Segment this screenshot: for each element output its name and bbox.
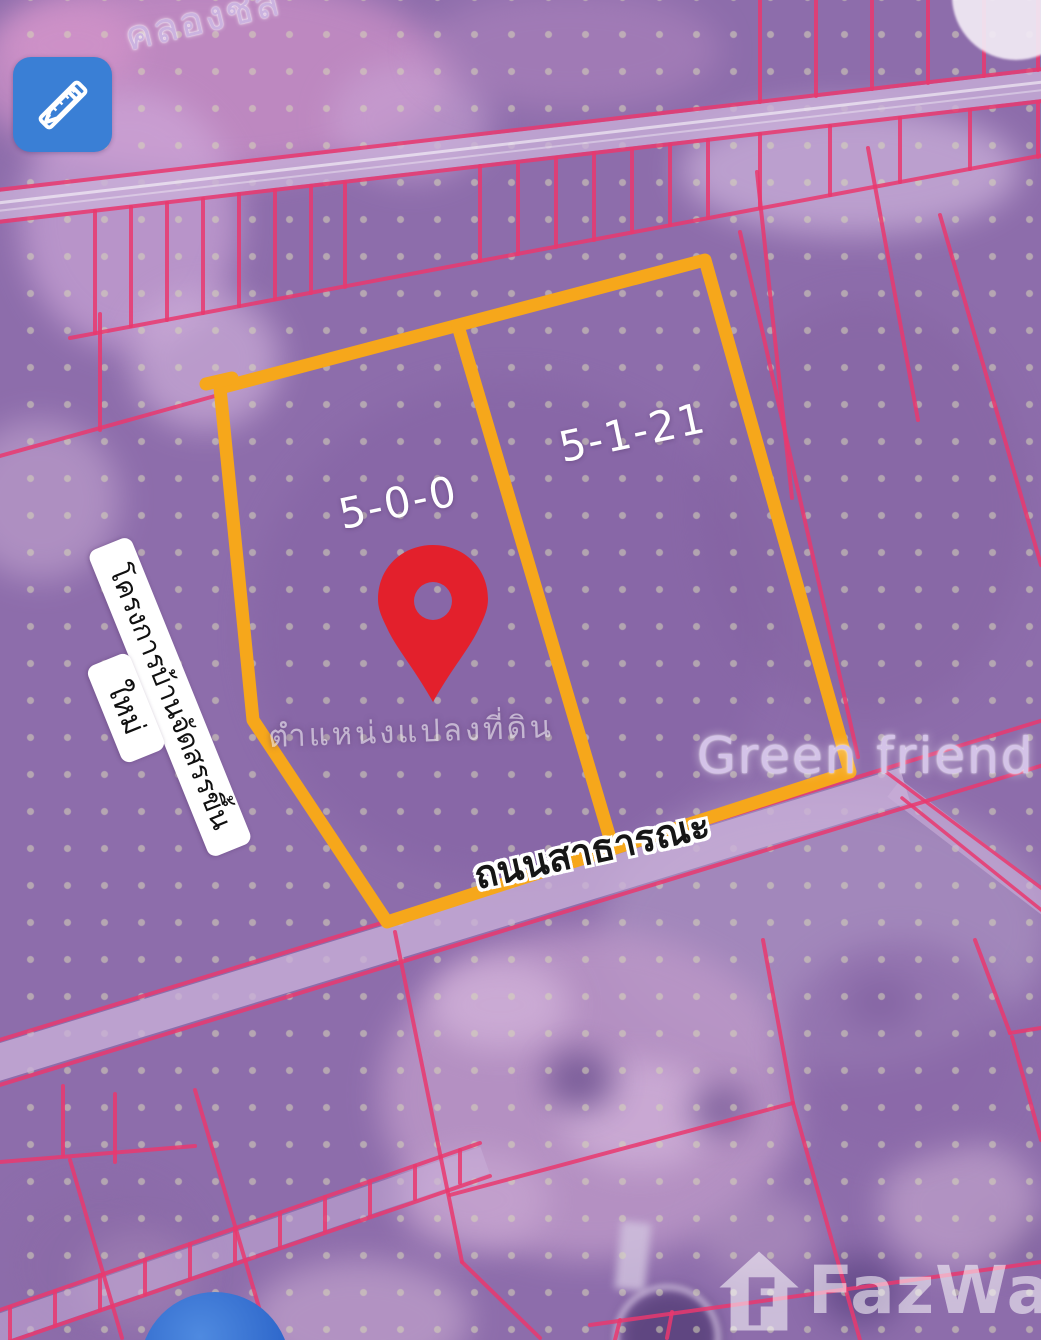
watermark-brand: FazWaz	[808, 1258, 1041, 1324]
house-logo-icon	[716, 1248, 802, 1334]
place-name-label: Green friend	[697, 727, 1035, 785]
plot-position-label: ตำแหน่งแปลงที่ดิน	[267, 701, 554, 761]
ruler-pencil-icon	[24, 66, 102, 144]
location-pin-icon[interactable]	[378, 545, 488, 702]
plot-boundary-outline	[206, 260, 850, 922]
measure-tool-button[interactable]	[13, 57, 112, 152]
map-canvas[interactable]: คลองชล 5-0-0 5-1-21 ตำแหน่งแปลงที่ดิน Gr…	[0, 0, 1041, 1340]
watermark: FazWaz	[716, 1248, 1041, 1334]
